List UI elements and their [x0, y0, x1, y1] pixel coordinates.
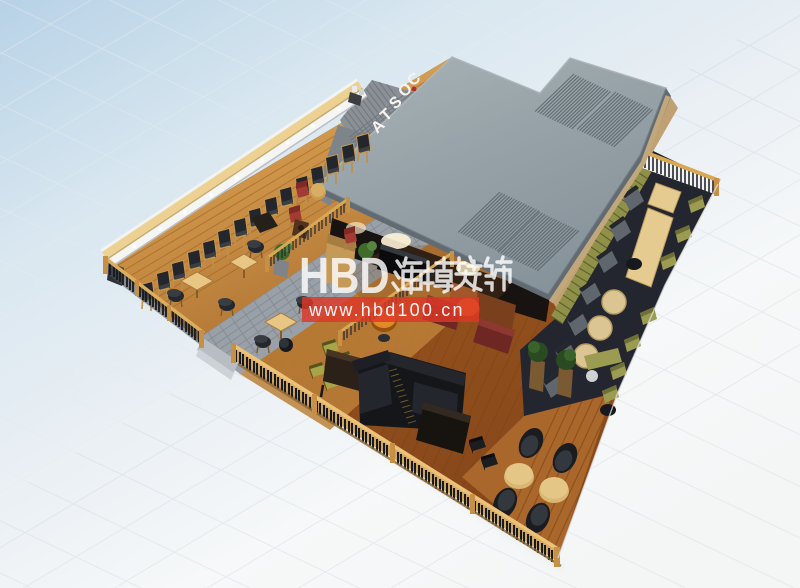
- svg-text:www.hbd100.cn: www.hbd100.cn: [308, 300, 465, 320]
- svg-text:HBD: HBD: [299, 247, 390, 304]
